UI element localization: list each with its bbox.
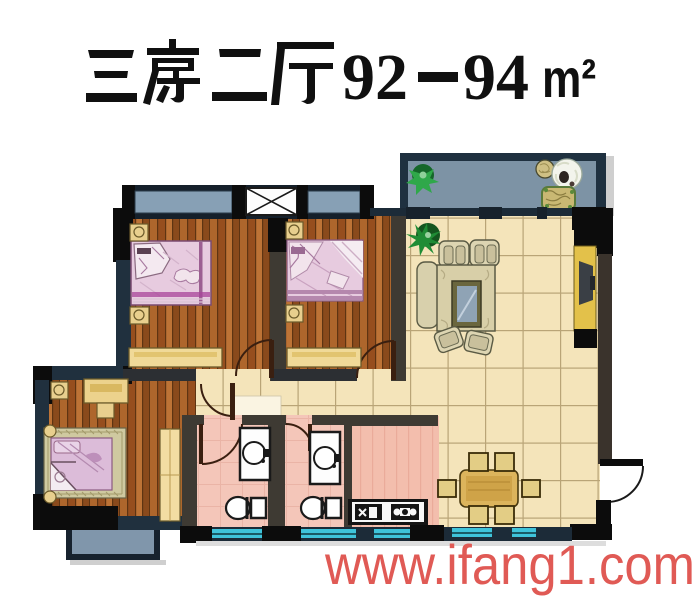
svg-text:92: 92 (342, 41, 408, 114)
svg-text:m²: m² (542, 49, 596, 109)
svg-text:www.ifang1.com: www.ifang1.com (324, 533, 695, 596)
svg-text:94: 94 (463, 41, 529, 114)
